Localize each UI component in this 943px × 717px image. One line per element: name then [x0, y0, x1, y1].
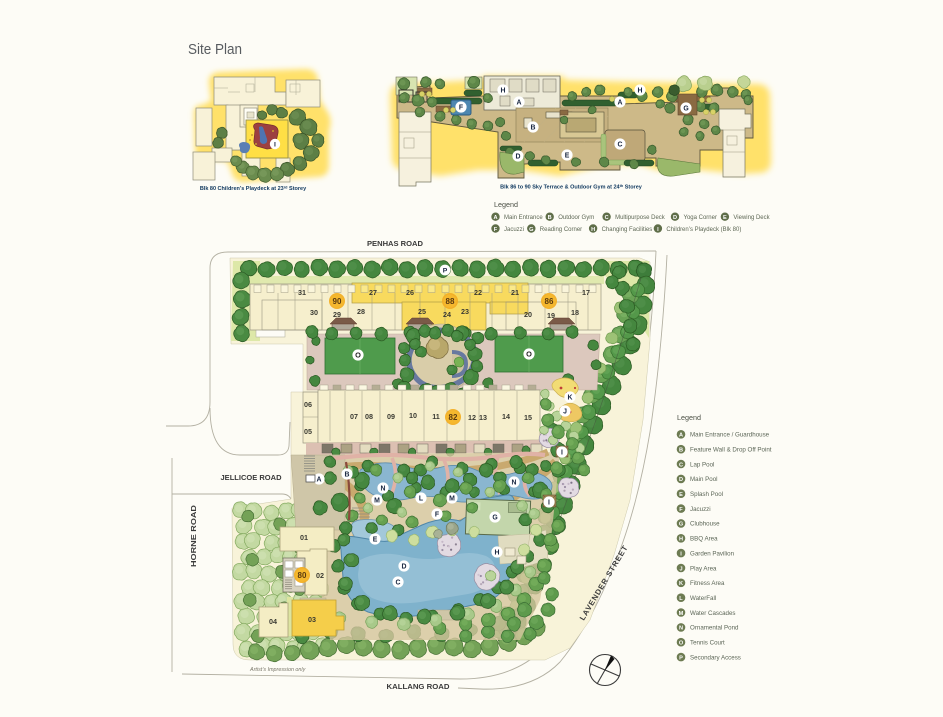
- svg-text:Outdoor Gym: Outdoor Gym: [558, 215, 594, 221]
- svg-text:27: 27: [369, 288, 377, 297]
- svg-text:C: C: [679, 462, 683, 468]
- svg-text:Children’s Playdeck (Blk 80): Children’s Playdeck (Blk 80): [666, 227, 741, 233]
- svg-text:15: 15: [524, 413, 532, 422]
- svg-text:Garden Pavilion: Garden Pavilion: [690, 550, 735, 557]
- svg-text:Multipurpose Deck: Multipurpose Deck: [615, 215, 666, 221]
- svg-text:Tennis Court: Tennis Court: [690, 640, 725, 647]
- svg-text:M: M: [449, 495, 455, 502]
- svg-text:A: A: [493, 215, 497, 221]
- svg-text:21: 21: [511, 288, 519, 297]
- svg-text:G: G: [529, 227, 533, 233]
- svg-text:O: O: [355, 351, 361, 360]
- svg-text:29: 29: [333, 310, 341, 319]
- svg-text:H: H: [495, 549, 500, 556]
- svg-text:Feature Wall & Drop Off Point: Feature Wall & Drop Off Point: [690, 447, 772, 454]
- svg-text:10: 10: [409, 411, 417, 420]
- svg-text:14: 14: [502, 412, 510, 421]
- svg-text:D: D: [679, 477, 683, 483]
- svg-text:F: F: [459, 104, 463, 111]
- svg-text:F: F: [435, 511, 439, 518]
- svg-text:B: B: [345, 471, 350, 478]
- svg-text:20: 20: [524, 310, 532, 319]
- svg-text:PENHAS ROAD: PENHAS ROAD: [367, 239, 424, 248]
- svg-text:A: A: [618, 99, 623, 106]
- svg-text:82: 82: [449, 413, 458, 422]
- svg-text:BBQ Area: BBQ Area: [690, 536, 718, 543]
- svg-text:F: F: [494, 227, 498, 233]
- svg-text:A: A: [317, 476, 322, 483]
- svg-text:Play Area: Play Area: [690, 565, 717, 572]
- svg-text:31: 31: [298, 288, 306, 297]
- svg-text:Site Plan: Site Plan: [188, 41, 242, 58]
- svg-text:Main Entrance / Guardhouse: Main Entrance / Guardhouse: [690, 432, 770, 439]
- svg-text:22: 22: [474, 288, 482, 297]
- svg-text:Fitness Area: Fitness Area: [690, 580, 725, 587]
- svg-text:Viewing Deck: Viewing Deck: [733, 215, 770, 221]
- svg-text:M: M: [374, 497, 380, 504]
- svg-text:O: O: [679, 641, 684, 647]
- svg-text:G: G: [679, 522, 683, 528]
- svg-text:B: B: [679, 448, 683, 454]
- svg-text:Legend: Legend: [677, 413, 701, 422]
- svg-text:09: 09: [387, 412, 395, 421]
- svg-text:Jacuzzi: Jacuzzi: [504, 227, 524, 233]
- svg-text:28: 28: [357, 307, 365, 316]
- svg-text:H: H: [591, 227, 595, 233]
- svg-text:C: C: [618, 141, 623, 148]
- svg-text:J: J: [563, 408, 567, 415]
- svg-text:C: C: [396, 579, 401, 586]
- svg-text:Changing Facilities: Changing Facilities: [602, 227, 653, 233]
- svg-text:HORNE ROAD: HORNE ROAD: [189, 504, 198, 567]
- svg-text:L: L: [679, 596, 683, 602]
- svg-text:I: I: [561, 449, 563, 456]
- svg-text:11: 11: [432, 412, 440, 421]
- svg-text:E: E: [679, 492, 683, 498]
- svg-text:Legend: Legend: [494, 200, 518, 209]
- svg-text:Jacuzzi: Jacuzzi: [690, 506, 711, 513]
- svg-text:Artist’s Impression only: Artist’s Impression only: [249, 667, 306, 673]
- svg-text:30: 30: [310, 308, 318, 317]
- svg-text:80: 80: [298, 571, 307, 580]
- svg-text:N: N: [381, 485, 386, 492]
- svg-text:17: 17: [582, 288, 590, 297]
- svg-text:19: 19: [547, 311, 555, 320]
- svg-text:08: 08: [365, 412, 373, 421]
- svg-text:E: E: [373, 536, 378, 543]
- svg-text:06: 06: [304, 400, 312, 409]
- svg-text:Ornamental Pond: Ornamental Pond: [690, 625, 739, 632]
- svg-text:01: 01: [300, 533, 308, 542]
- svg-text:G: G: [683, 105, 688, 112]
- svg-text:12: 12: [468, 413, 476, 422]
- svg-text:D: D: [673, 215, 677, 221]
- svg-text:88: 88: [446, 297, 455, 306]
- svg-text:13: 13: [479, 413, 487, 422]
- svg-text:Lap Pool: Lap Pool: [690, 461, 714, 468]
- svg-text:Clubhouse: Clubhouse: [690, 521, 720, 528]
- svg-text:L: L: [419, 495, 423, 502]
- svg-text:02: 02: [316, 571, 324, 580]
- svg-text:H: H: [501, 87, 506, 94]
- svg-text:H: H: [638, 87, 643, 94]
- svg-text:A: A: [517, 99, 522, 106]
- svg-text:05: 05: [304, 427, 312, 436]
- svg-text:Yoga Corner: Yoga Corner: [684, 215, 717, 221]
- svg-text:26: 26: [406, 288, 414, 297]
- svg-text:C: C: [605, 215, 609, 221]
- svg-text:90: 90: [333, 297, 342, 306]
- svg-text:KALLANG ROAD: KALLANG ROAD: [387, 682, 450, 691]
- svg-text:D: D: [402, 563, 407, 570]
- svg-text:K: K: [568, 394, 573, 401]
- svg-text:04: 04: [269, 617, 277, 626]
- svg-text:B: B: [548, 215, 552, 221]
- svg-text:G: G: [492, 514, 497, 521]
- svg-text:Main Entrance: Main Entrance: [504, 215, 543, 221]
- svg-text:I: I: [548, 499, 550, 506]
- svg-text:25: 25: [418, 307, 426, 316]
- svg-text:Splash Pool: Splash Pool: [690, 491, 723, 498]
- svg-text:03: 03: [308, 615, 316, 624]
- svg-text:B: B: [531, 124, 536, 131]
- svg-text:E: E: [565, 152, 570, 159]
- svg-text:I: I: [274, 141, 276, 148]
- svg-text:Water Cascades: Water Cascades: [690, 610, 736, 617]
- svg-text:P: P: [443, 267, 448, 274]
- svg-text:24: 24: [443, 310, 451, 319]
- svg-text:WaterFall: WaterFall: [690, 595, 716, 602]
- svg-text:86: 86: [545, 297, 554, 306]
- svg-text:J: J: [679, 566, 682, 572]
- svg-text:18: 18: [571, 308, 579, 317]
- svg-text:N: N: [512, 479, 517, 486]
- svg-text:K: K: [679, 581, 683, 587]
- svg-text:Blk 80 Children’s Playdeck at: Blk 80 Children’s Playdeck at 23rd Store…: [200, 185, 307, 192]
- svg-text:H: H: [679, 537, 683, 543]
- svg-text:F: F: [679, 507, 683, 513]
- svg-text:Main Pool: Main Pool: [690, 476, 718, 483]
- svg-text:A: A: [679, 433, 683, 439]
- svg-text:N: N: [679, 626, 683, 632]
- svg-text:M: M: [679, 611, 684, 617]
- svg-text:O: O: [526, 350, 532, 359]
- svg-text:Secondary Access: Secondary Access: [690, 654, 741, 661]
- svg-text:07: 07: [350, 412, 358, 421]
- svg-text:D: D: [516, 153, 521, 160]
- svg-text:JELLICOE ROAD: JELLICOE ROAD: [221, 473, 283, 482]
- svg-text:Reading Corner: Reading Corner: [540, 227, 582, 233]
- svg-text:23: 23: [461, 307, 469, 316]
- svg-text:E: E: [723, 215, 727, 221]
- svg-text:P: P: [679, 655, 683, 661]
